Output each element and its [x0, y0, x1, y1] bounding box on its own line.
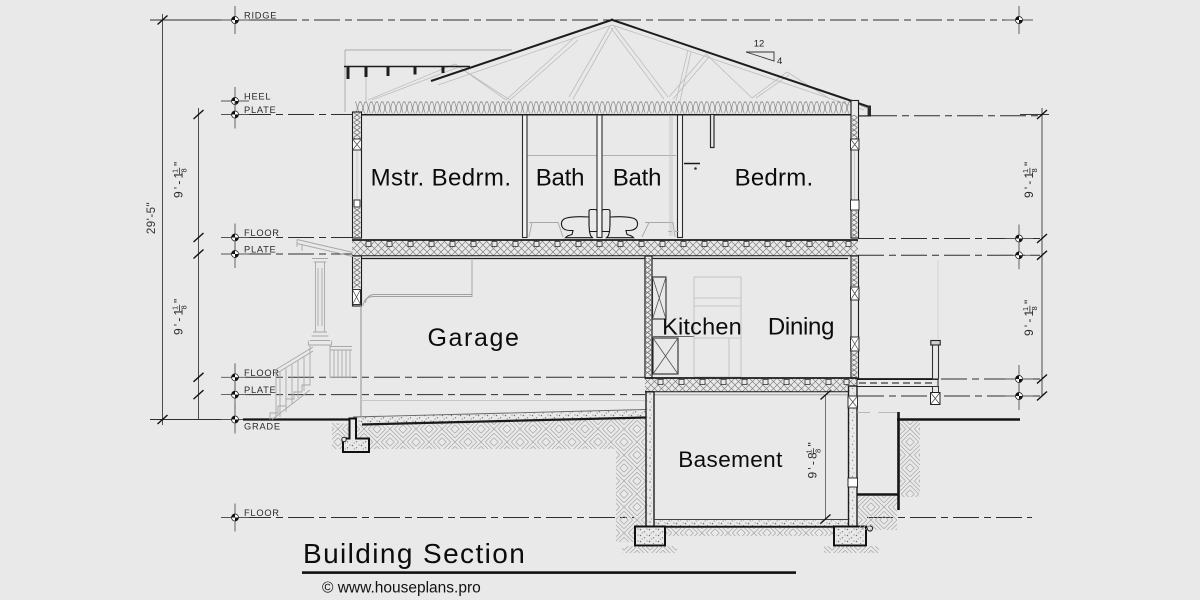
svg-text:8: 8 — [180, 168, 189, 172]
svg-text:8: 8 — [1030, 306, 1039, 310]
svg-text:Bath: Bath — [613, 165, 662, 192]
svg-text:1: 1 — [1021, 169, 1030, 173]
svg-text:Garage: Garage — [428, 324, 521, 352]
svg-text:Kitchen: Kitchen — [662, 314, 742, 340]
svg-text:Mstr. Bedrm.: Mstr. Bedrm. — [371, 165, 512, 192]
svg-text:8: 8 — [180, 305, 189, 309]
svg-text:1: 1 — [170, 306, 179, 310]
svg-text:": " — [172, 162, 186, 166]
svg-text:PLATE: PLATE — [244, 245, 277, 255]
svg-text:FLOOR: FLOOR — [244, 228, 280, 238]
svg-text:© www.houseplans.pro: © www.houseplans.pro — [322, 580, 481, 597]
svg-text:Building Section: Building Section — [303, 538, 526, 569]
svg-text:FLOOR: FLOOR — [244, 508, 280, 518]
svg-text:1: 1 — [1021, 307, 1030, 311]
svg-text:4: 4 — [777, 56, 782, 67]
svg-text:Dining: Dining — [768, 314, 834, 341]
svg-text:RIDGE: RIDGE — [244, 10, 277, 20]
svg-text:GRADE: GRADE — [244, 422, 281, 432]
svg-text:1: 1 — [804, 449, 813, 453]
svg-text:1: 1 — [170, 169, 179, 173]
svg-text:": " — [806, 442, 820, 446]
svg-text:29'-5": 29'-5" — [146, 202, 158, 234]
svg-text:": " — [1022, 162, 1036, 166]
svg-text:8: 8 — [814, 449, 823, 453]
svg-text:HEEL: HEEL — [244, 91, 271, 101]
svg-text:PLATE: PLATE — [244, 105, 277, 115]
svg-text:12: 12 — [754, 39, 765, 50]
svg-text:FLOOR: FLOOR — [244, 368, 280, 378]
svg-text:": " — [172, 299, 186, 303]
svg-text:PLATE: PLATE — [244, 385, 277, 395]
svg-text:8: 8 — [1030, 168, 1039, 172]
svg-text:Bedrm.: Bedrm. — [735, 165, 814, 192]
svg-text:Basement: Basement — [678, 447, 783, 472]
svg-text:Bath: Bath — [536, 165, 585, 192]
svg-text:": " — [1022, 300, 1036, 304]
